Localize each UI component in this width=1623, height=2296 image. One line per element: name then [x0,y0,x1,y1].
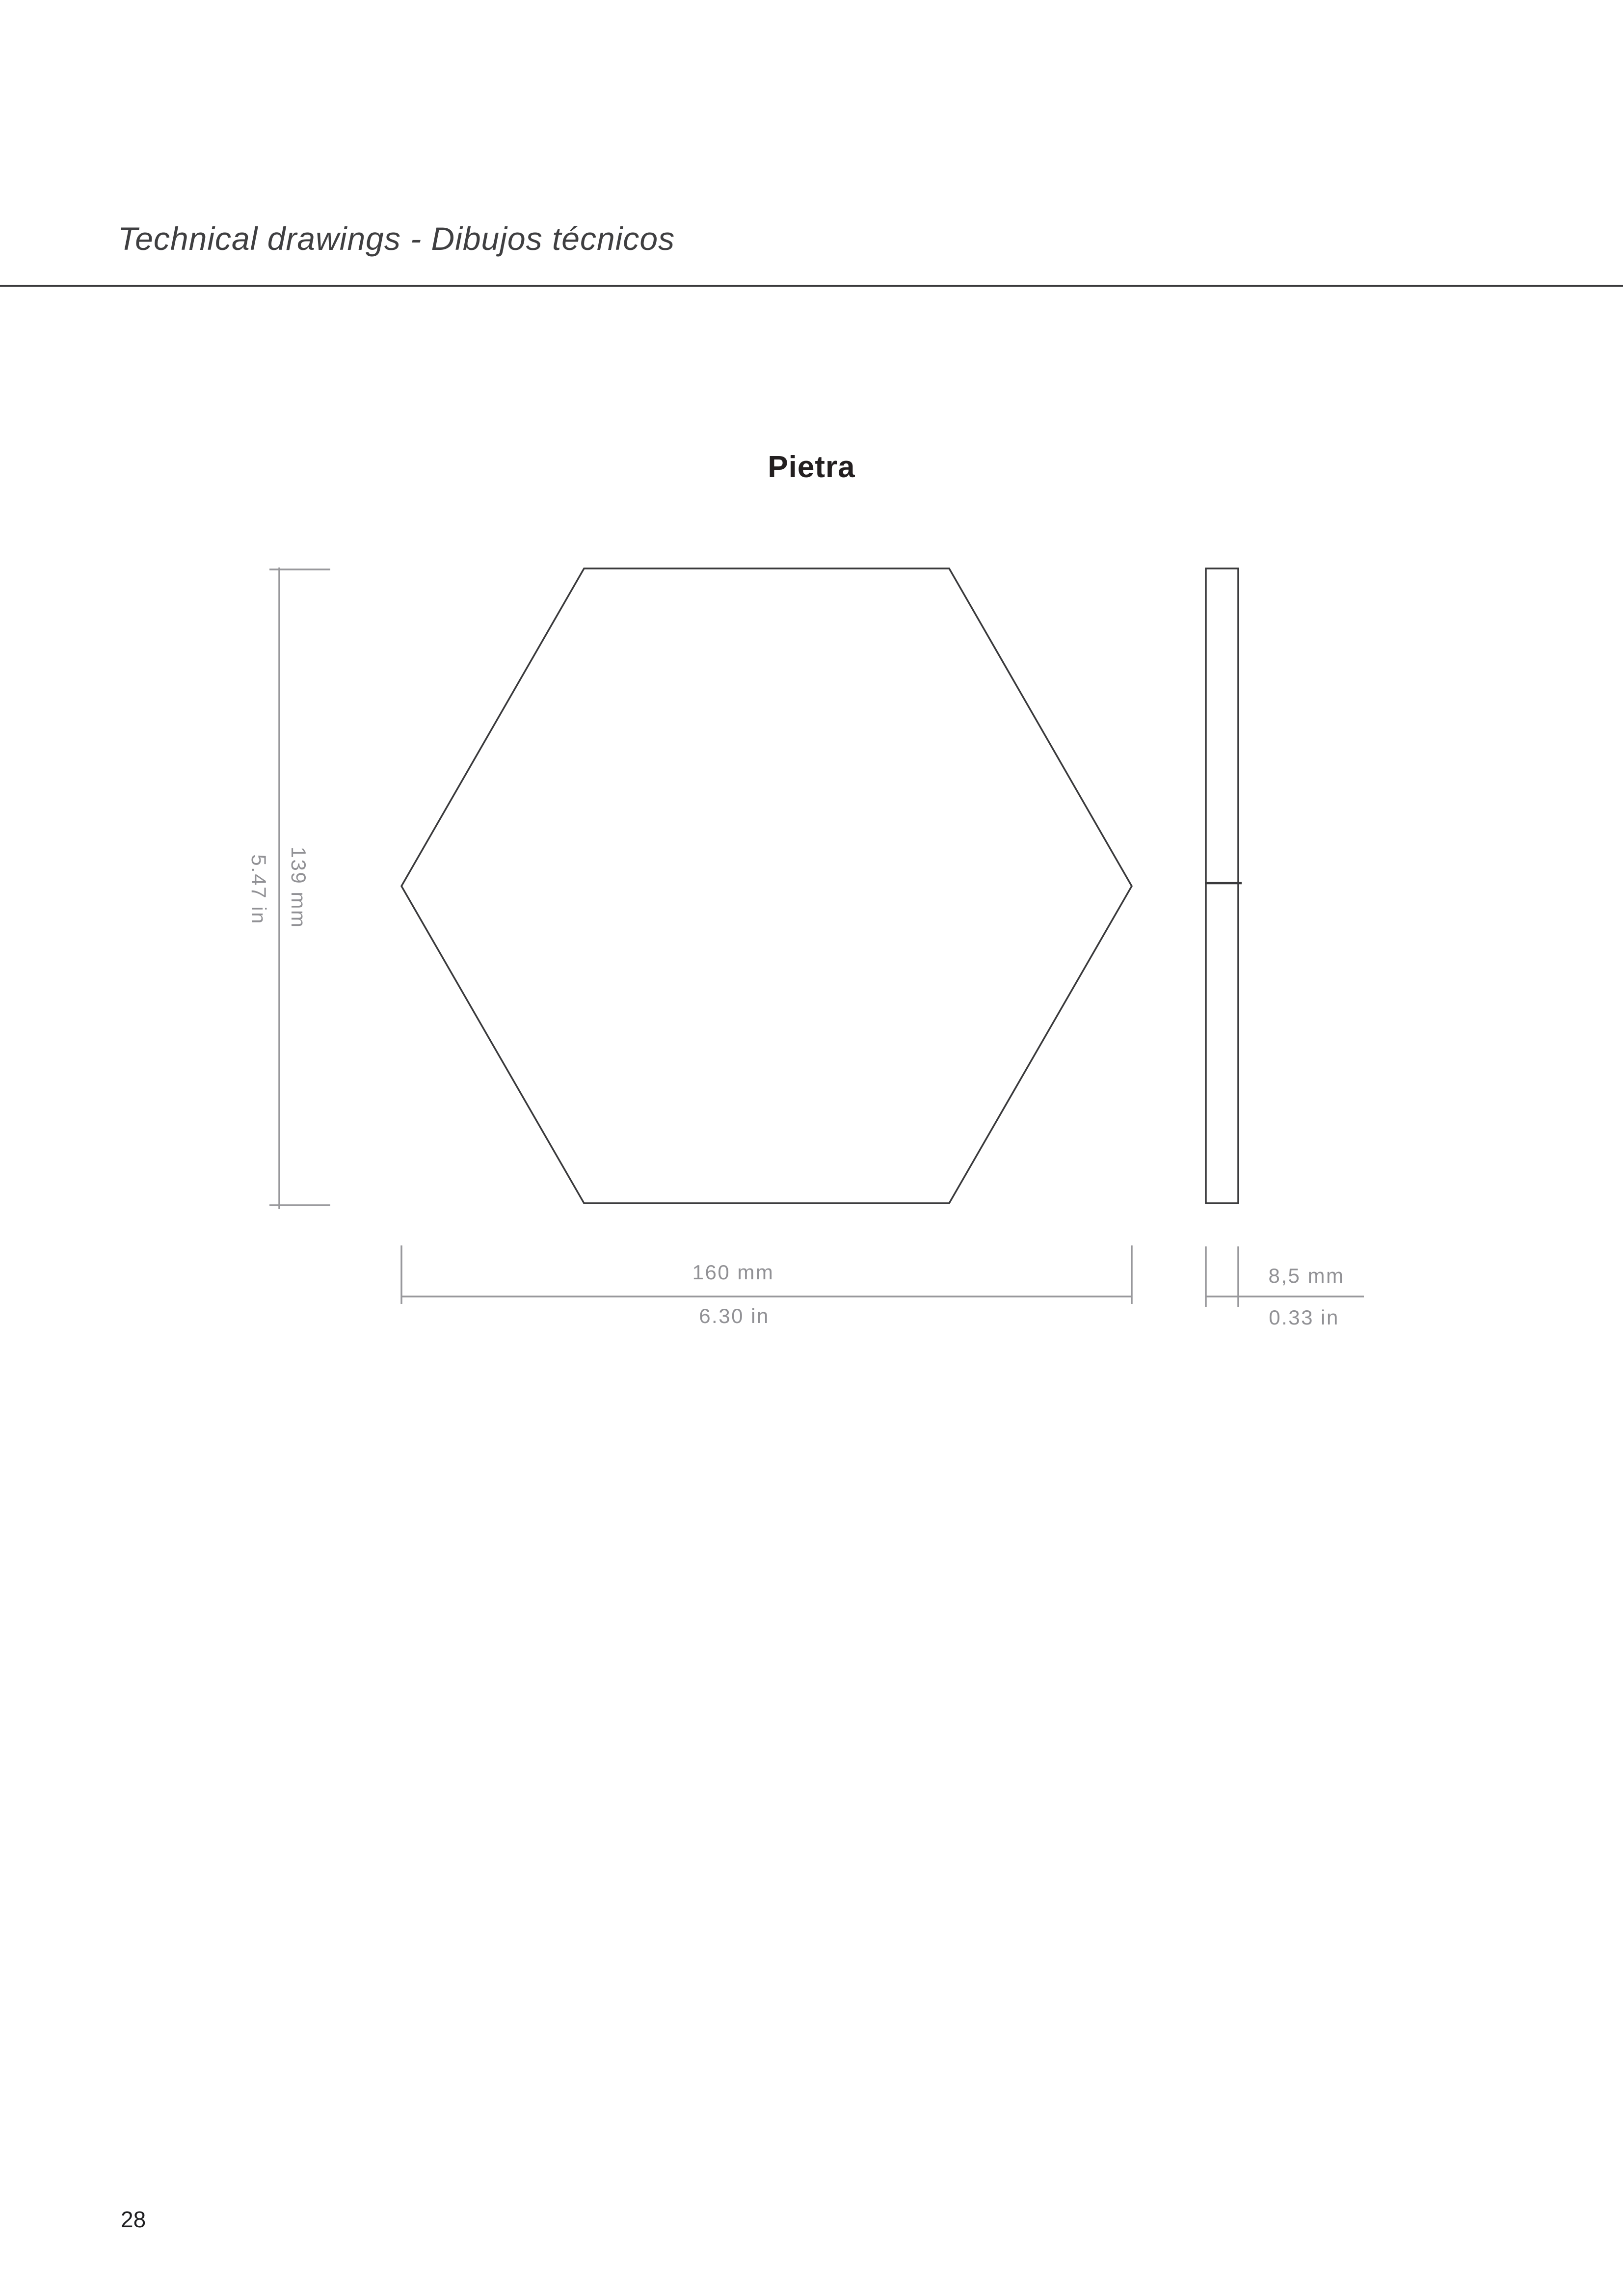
side-profile-outline [1206,568,1238,1203]
catalog-page: Technical drawings - Dibujos técnicos Pi… [0,0,1623,2296]
height-label-mm: 139 mm [287,847,310,929]
width-label-in: 6.30 in [699,1304,770,1328]
height-label-in: 5.47 in [247,854,270,925]
thickness-label-in: 0.33 in [1269,1306,1339,1329]
page-number: 28 [121,2206,146,2233]
width-label-mm: 160 mm [692,1261,774,1284]
thickness-label-mm: 8,5 mm [1268,1264,1344,1288]
technical-drawing-canvas [0,0,1623,2296]
hexagon-tile-outline [401,568,1132,1203]
